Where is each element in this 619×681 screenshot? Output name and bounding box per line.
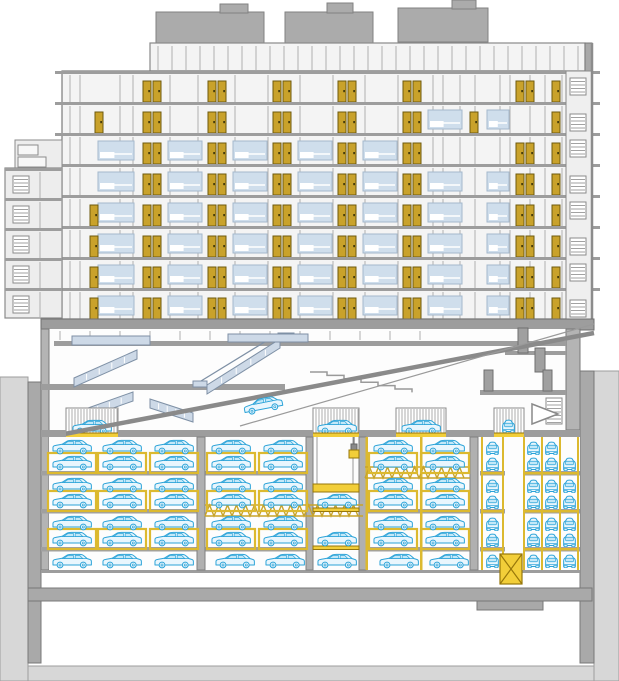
window-detail xyxy=(235,245,249,251)
apartment-door xyxy=(153,112,161,133)
door-handle xyxy=(288,152,290,154)
garage-ceiling-slab xyxy=(524,430,580,437)
apartment-door xyxy=(273,267,281,288)
hatch-box xyxy=(13,236,29,253)
apartment-door xyxy=(526,174,534,195)
door-handle xyxy=(557,214,559,216)
window-detail xyxy=(489,245,498,251)
door-handle xyxy=(278,307,280,309)
window-detail xyxy=(235,276,249,282)
window-detail xyxy=(170,214,184,220)
door-handle xyxy=(418,245,420,247)
apartment-door xyxy=(208,174,216,195)
door-handle xyxy=(158,307,160,309)
window-detail xyxy=(100,276,114,282)
window-detail xyxy=(300,307,314,313)
window-panel xyxy=(168,296,202,315)
door-handle xyxy=(343,183,345,185)
apartment-door xyxy=(153,236,161,257)
window-detail xyxy=(489,183,498,189)
apartment-door xyxy=(403,267,411,288)
apartment-door xyxy=(90,267,98,288)
garage-ceiling-slab xyxy=(359,430,396,437)
apartment-door xyxy=(348,112,356,133)
door-handle xyxy=(278,152,280,154)
door-handle xyxy=(408,214,410,216)
stair-landing xyxy=(72,336,150,345)
floor-slab xyxy=(55,164,600,167)
apartment-door xyxy=(413,205,421,226)
stacker-post xyxy=(541,437,543,570)
wing-louver xyxy=(18,157,46,167)
shaft-stair-hatch xyxy=(570,140,586,157)
window-detail xyxy=(170,245,184,251)
wing-stair-hatch xyxy=(13,266,29,283)
door-handle xyxy=(288,183,290,185)
window-panel xyxy=(233,141,267,160)
apartment-door xyxy=(283,205,291,226)
door-handle xyxy=(557,90,559,92)
stacker-post xyxy=(502,437,504,570)
apartment-door xyxy=(413,174,421,195)
hatch-box xyxy=(13,266,29,283)
shaft-stair-hatch xyxy=(570,114,586,131)
hatch-box xyxy=(13,206,29,223)
door-handle xyxy=(288,307,290,309)
apartment-door xyxy=(283,81,291,102)
rooftop-plant-unit xyxy=(285,12,373,43)
door-handle xyxy=(213,245,215,247)
hatch-box xyxy=(570,300,586,317)
apartment-door xyxy=(526,205,534,226)
apartment-door xyxy=(208,205,216,226)
window-panel xyxy=(168,234,202,253)
door-handle xyxy=(531,183,533,185)
door-handle xyxy=(531,307,533,309)
window-detail xyxy=(430,245,444,251)
door-handle xyxy=(343,214,345,216)
apartment-door xyxy=(273,174,281,195)
door-handle xyxy=(521,214,523,216)
wing-stair-hatch xyxy=(13,176,29,193)
lobby-wall-right xyxy=(566,329,580,430)
window-panel xyxy=(98,296,134,315)
window-detail xyxy=(430,214,444,220)
stacker-shelf xyxy=(481,510,503,513)
door-handle xyxy=(557,245,559,247)
rooftop-plant-unit xyxy=(156,12,264,43)
door-handle xyxy=(408,90,410,92)
door-handle xyxy=(213,121,215,123)
door-handle xyxy=(531,90,533,92)
apartment-door xyxy=(552,143,560,164)
apartment-door xyxy=(348,205,356,226)
window-panel xyxy=(298,296,332,315)
window-detail xyxy=(365,245,379,251)
window-detail xyxy=(100,152,114,158)
door-handle xyxy=(213,183,215,185)
window-detail xyxy=(100,245,114,251)
apartment-door xyxy=(348,298,356,319)
door-handle xyxy=(557,276,559,278)
floor-slab xyxy=(5,228,62,231)
door-handle xyxy=(148,90,150,92)
apartment-door xyxy=(516,143,524,164)
floor-slab xyxy=(55,71,600,74)
door-handle xyxy=(213,307,215,309)
apartment-door xyxy=(403,174,411,195)
apartment-door xyxy=(143,143,151,164)
window-panel xyxy=(233,203,267,222)
apartment-door xyxy=(338,298,346,319)
rooftop-plant-unit xyxy=(398,8,488,42)
apartment-door xyxy=(273,143,281,164)
rooftop-plant-unit xyxy=(220,4,248,13)
lift-platform xyxy=(313,484,359,492)
ground-right xyxy=(594,371,619,681)
door-handle xyxy=(353,276,355,278)
floor-slab xyxy=(5,258,62,261)
window-panel xyxy=(363,141,397,160)
apartment-door xyxy=(403,112,411,133)
apartment-door xyxy=(283,236,291,257)
door-handle xyxy=(343,152,345,154)
window-panel xyxy=(298,265,332,284)
door-handle xyxy=(223,90,225,92)
window-detail xyxy=(365,214,379,220)
apartment-door xyxy=(348,143,356,164)
window-panel xyxy=(298,203,332,222)
door-handle xyxy=(278,90,280,92)
window-panel xyxy=(98,172,134,191)
window-detail xyxy=(430,307,444,313)
window-panel xyxy=(168,203,202,222)
door-handle xyxy=(353,214,355,216)
window-panel xyxy=(428,110,462,129)
door-handle xyxy=(223,183,225,185)
door-handle xyxy=(408,121,410,123)
hatch-box xyxy=(570,238,586,255)
door-handle xyxy=(158,276,160,278)
ground-left xyxy=(0,377,28,681)
apartment-door xyxy=(143,112,151,133)
wing-louver xyxy=(18,145,38,155)
window-detail xyxy=(365,152,379,158)
apartment-door xyxy=(516,174,524,195)
apartment-door xyxy=(348,236,356,257)
window-panel xyxy=(298,172,332,191)
door-handle xyxy=(288,214,290,216)
door-handle xyxy=(223,245,225,247)
window-panel xyxy=(233,296,267,315)
shaft-stair-hatch xyxy=(570,238,586,255)
window-panel xyxy=(428,203,462,222)
garage-ceiling-slab xyxy=(446,430,494,437)
door-handle xyxy=(557,307,559,309)
basement-wall-right xyxy=(580,371,594,663)
door-handle xyxy=(158,121,160,123)
door-handle xyxy=(408,183,410,185)
door-handle xyxy=(223,307,225,309)
shaft-stair-hatch xyxy=(570,176,586,193)
roof-plant-units xyxy=(156,0,488,43)
door-handle xyxy=(148,214,150,216)
lift-pallet xyxy=(313,546,359,550)
door-handle xyxy=(521,245,523,247)
rooftop-plant-unit xyxy=(327,3,353,13)
window-panel xyxy=(298,234,332,253)
window-panel xyxy=(298,141,332,160)
door-handle xyxy=(213,90,215,92)
window-panel xyxy=(233,265,267,284)
door-handle xyxy=(418,307,420,309)
door-handle xyxy=(557,152,559,154)
apartment-door xyxy=(143,81,151,102)
floor-slab xyxy=(55,288,600,291)
apartment-door xyxy=(153,298,161,319)
apartment-door xyxy=(153,174,161,195)
apartment-door xyxy=(526,236,534,257)
lobby-door xyxy=(484,370,493,391)
window-panel xyxy=(487,172,509,191)
door-handle xyxy=(521,152,523,154)
apartment-door xyxy=(273,298,281,319)
apartment-door xyxy=(273,81,281,102)
door-handle xyxy=(278,121,280,123)
window-detail xyxy=(300,276,314,282)
window-detail xyxy=(430,121,444,127)
apartment-door xyxy=(90,298,98,319)
apartment-door xyxy=(552,267,560,288)
hatch-box xyxy=(570,78,586,95)
apartment-door xyxy=(208,267,216,288)
door-handle xyxy=(418,121,420,123)
apartment-door xyxy=(338,267,346,288)
apartment-door xyxy=(413,112,421,133)
door-handle xyxy=(95,245,97,247)
door-handle xyxy=(148,307,150,309)
apartment-door xyxy=(338,174,346,195)
window-detail xyxy=(170,152,184,158)
apartment-door xyxy=(516,267,524,288)
door-handle xyxy=(158,183,160,185)
lobby-door xyxy=(543,370,552,391)
window-detail xyxy=(489,276,498,282)
car-lift-bay xyxy=(394,408,448,438)
door-handle xyxy=(288,245,290,247)
apartment-door xyxy=(552,236,560,257)
window-detail xyxy=(100,183,114,189)
apartment-door xyxy=(283,112,291,133)
apartment-door xyxy=(208,143,216,164)
stacker-post xyxy=(559,437,561,570)
apartment-door xyxy=(208,81,216,102)
apartment-door xyxy=(470,112,478,133)
apartment-door xyxy=(208,236,216,257)
window-panel xyxy=(428,265,462,284)
stacker-shelf xyxy=(523,472,579,475)
apartment-door xyxy=(552,205,560,226)
wing-stair-hatch xyxy=(13,296,29,313)
door-handle xyxy=(213,152,215,154)
window-detail xyxy=(430,276,444,282)
apartment-door xyxy=(526,143,534,164)
apartment-door xyxy=(403,143,411,164)
door-handle xyxy=(418,90,420,92)
door-handle xyxy=(148,245,150,247)
apartment-door xyxy=(208,298,216,319)
door-handle xyxy=(353,307,355,309)
door-handle xyxy=(158,245,160,247)
transfer-slab xyxy=(41,319,594,330)
door-handle xyxy=(223,214,225,216)
stacker-shelf xyxy=(481,472,503,475)
window-detail xyxy=(365,183,379,189)
apartment-door xyxy=(552,81,560,102)
window-detail xyxy=(365,307,379,313)
car-lift-bay xyxy=(492,408,526,438)
door-handle xyxy=(158,214,160,216)
apartment-door xyxy=(153,143,161,164)
apartment-door xyxy=(338,143,346,164)
apartment-door xyxy=(283,267,291,288)
door-handle xyxy=(343,276,345,278)
apartment-door xyxy=(348,267,356,288)
window-detail xyxy=(489,121,498,127)
door-handle xyxy=(343,121,345,123)
floor-slab xyxy=(55,102,600,105)
right-stair-shaft xyxy=(566,43,592,319)
door-handle xyxy=(408,152,410,154)
apartment-door xyxy=(526,267,534,288)
window-panel xyxy=(428,296,462,315)
window-panel xyxy=(168,265,202,284)
door-handle xyxy=(95,307,97,309)
apartment-door xyxy=(413,81,421,102)
door-handle xyxy=(353,152,355,154)
wing-stair-hatch xyxy=(13,236,29,253)
window-panel xyxy=(98,203,134,222)
apartment-door xyxy=(143,298,151,319)
apartment-door xyxy=(403,236,411,257)
apartment-door xyxy=(218,143,226,164)
shaft-body xyxy=(566,71,592,319)
apartment-door xyxy=(218,174,226,195)
door-handle xyxy=(557,183,559,185)
door-handle xyxy=(213,214,215,216)
window-panel xyxy=(168,172,202,191)
apartment-door xyxy=(143,205,151,226)
apartment-door xyxy=(90,236,98,257)
apartment-door xyxy=(338,81,346,102)
door-handle xyxy=(223,121,225,123)
window-detail xyxy=(100,307,114,313)
window-panel xyxy=(233,234,267,253)
door-handle xyxy=(278,245,280,247)
car-lift-bay xyxy=(311,408,361,438)
window-detail xyxy=(170,307,184,313)
stacker-shelf xyxy=(523,548,579,551)
building-cross-section-drawing: Architectural cross-section: residential… xyxy=(0,0,619,681)
window-detail xyxy=(170,276,184,282)
apartment-door xyxy=(413,298,421,319)
window-detail xyxy=(235,183,249,189)
door-handle xyxy=(521,276,523,278)
door-handle xyxy=(343,307,345,309)
window-detail xyxy=(235,152,249,158)
door-handle xyxy=(95,276,97,278)
tower-facade xyxy=(55,71,600,319)
apartment-door xyxy=(153,267,161,288)
shaft-stair-hatch xyxy=(570,300,586,317)
door-handle xyxy=(418,214,420,216)
apartment-door xyxy=(273,112,281,133)
door-handle xyxy=(148,121,150,123)
escalator-foot xyxy=(193,381,207,387)
window-detail xyxy=(300,183,314,189)
window-detail xyxy=(430,183,444,189)
door-handle xyxy=(531,152,533,154)
lobby-door xyxy=(535,348,545,372)
apartment-door xyxy=(348,174,356,195)
hatch-box xyxy=(13,176,29,193)
rooftop-plant-unit xyxy=(452,0,476,9)
floor-slab xyxy=(5,168,62,171)
apartment-door xyxy=(153,81,161,102)
apartment-door xyxy=(552,174,560,195)
door-handle xyxy=(343,90,345,92)
window-panel xyxy=(363,265,397,284)
door-handle xyxy=(148,152,150,154)
apartment-door xyxy=(338,236,346,257)
shaft-stair-hatch xyxy=(570,78,586,95)
window-panel xyxy=(363,172,397,191)
apartment-door xyxy=(516,205,524,226)
apartment-door xyxy=(90,205,98,226)
apartment-door xyxy=(143,267,151,288)
lift-pallet xyxy=(313,508,359,512)
door-handle xyxy=(158,90,160,92)
stacker-post xyxy=(481,437,483,570)
window-detail xyxy=(170,183,184,189)
door-handle xyxy=(213,276,215,278)
apartment-door xyxy=(143,174,151,195)
apartment-door xyxy=(143,236,151,257)
wing-stair-hatch xyxy=(13,206,29,223)
apartment-door xyxy=(218,267,226,288)
apartment-door xyxy=(273,205,281,226)
door-handle xyxy=(418,183,420,185)
window-detail xyxy=(489,214,498,220)
window-detail xyxy=(300,214,314,220)
door-handle xyxy=(531,245,533,247)
door-handle xyxy=(100,121,102,123)
apartment-door xyxy=(95,112,103,133)
window-panel xyxy=(487,265,509,284)
garage-ceiling-slab xyxy=(41,430,66,437)
window-detail xyxy=(300,245,314,251)
door-handle xyxy=(223,152,225,154)
hatch-box xyxy=(13,296,29,313)
apartment-door xyxy=(218,236,226,257)
window-detail xyxy=(235,214,249,220)
door-handle xyxy=(475,121,477,123)
stacker-post xyxy=(577,437,579,570)
door-handle xyxy=(408,245,410,247)
door-handle xyxy=(223,276,225,278)
apartment-door xyxy=(413,143,421,164)
section-diagram xyxy=(0,0,619,681)
